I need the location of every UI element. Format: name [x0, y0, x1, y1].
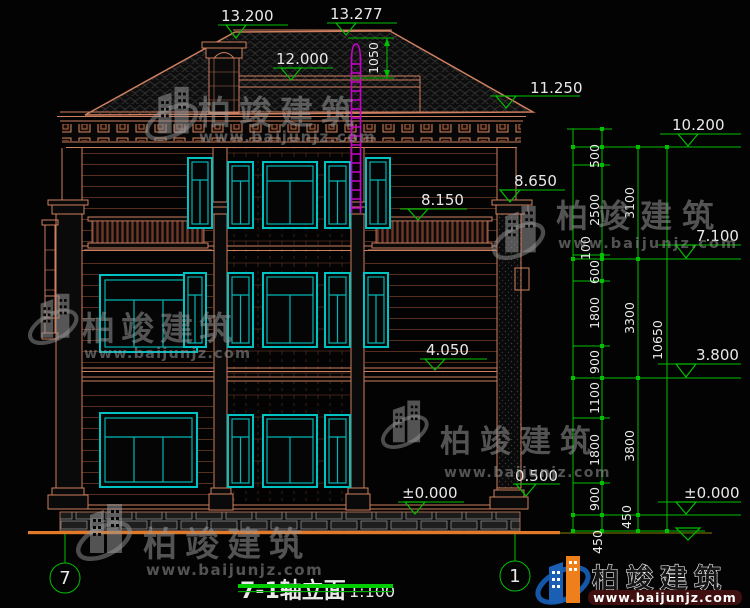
dim-a5: 900 [587, 350, 602, 374]
dim-b3: 450 [619, 505, 634, 529]
window [325, 273, 350, 347]
dim-total: 10650 [650, 320, 665, 360]
marker-10200: 10.200 [660, 116, 741, 146]
window [263, 273, 317, 347]
svg-text:11.250: 11.250 [530, 79, 583, 97]
title-block: 7-1轴立面 1:100 [238, 578, 395, 604]
watermark-name: 柏竣建筑 [556, 197, 724, 235]
svg-text:±0.000: ±0.000 [402, 484, 458, 502]
svg-text:±0.000: ±0.000 [684, 484, 740, 502]
watermark-url: www.baijunjz.com [146, 561, 323, 579]
window [188, 158, 212, 228]
watermark-url: www.baijunjz.com [84, 346, 251, 362]
svg-text:3.800: 3.800 [696, 346, 739, 364]
title-underline-thick [238, 584, 393, 588]
svg-text:8.650: 8.650 [514, 172, 557, 190]
window [263, 162, 317, 228]
dim-a4: 1800 [587, 297, 602, 329]
svg-text:13.277: 13.277 [330, 5, 383, 23]
axis-number: 1 [509, 566, 520, 587]
window [100, 413, 197, 487]
cad-elevation-drawing: 1050 13.200 13.277 12.000 11.250 8.650 8… [0, 0, 750, 608]
window [325, 415, 350, 487]
title-underline-thin [238, 591, 393, 592]
watermark-name: 柏竣建筑 [440, 424, 600, 460]
dimension-chains: 500 2500 100 600 1800 900 1100 1800 900 … [567, 116, 741, 554]
brand-url: www.baijunjz.com [593, 590, 737, 605]
dim-b1: 3300 [622, 302, 637, 334]
window [263, 415, 317, 487]
marker-0000-right: ±0.000 [658, 484, 741, 514]
brand-logo: 柏竣建筑 www.baijunjz.com [533, 556, 742, 608]
svg-text:8.150: 8.150 [421, 191, 464, 209]
watermark-name: 柏竣建筑 [82, 309, 238, 348]
watermark-name: 柏竣建筑 [143, 525, 311, 565]
axis-bubble-right: 1 [500, 534, 530, 591]
dim-a3: 600 [587, 260, 602, 284]
dim-a0: 500 [587, 144, 602, 168]
axis-bubble-left: 7 [50, 534, 80, 593]
window [366, 158, 390, 228]
watermark-name: 柏竣建筑 [198, 93, 362, 132]
svg-text:4.050: 4.050 [426, 341, 469, 359]
marker-base-triangle [676, 528, 700, 540]
dim-a9: 450 [590, 530, 605, 554]
dim-b2: 3800 [622, 430, 637, 462]
svg-text:13.200: 13.200 [221, 7, 274, 25]
dim-label: 1050 [366, 42, 381, 74]
corner-pilaster-left [45, 200, 88, 509]
svg-text:10.200: 10.200 [672, 116, 725, 134]
watermark-3: 柏竣建筑 www.baijunjz.com [489, 197, 738, 265]
window [228, 162, 253, 228]
window [325, 162, 350, 228]
drawing-canvas: 1050 13.200 13.277 12.000 11.250 8.650 8… [0, 0, 750, 608]
watermark-4: 柏竣建筑 www.baijunjz.com [378, 401, 611, 481]
watermark-url: www.baijunjz.com [199, 128, 376, 146]
watermark-url: www.baijunjz.com [444, 465, 611, 481]
window [228, 415, 253, 487]
dim-a6: 1100 [587, 382, 602, 414]
watermark-url: www.baijunjz.com [558, 236, 738, 252]
svg-text:12.000: 12.000 [276, 50, 329, 68]
marker-3800: 3.800 [658, 346, 741, 377]
axis-number: 7 [59, 568, 70, 589]
brand-logo-icon [533, 556, 594, 608]
dim-a8: 900 [587, 487, 602, 511]
window [364, 273, 388, 347]
